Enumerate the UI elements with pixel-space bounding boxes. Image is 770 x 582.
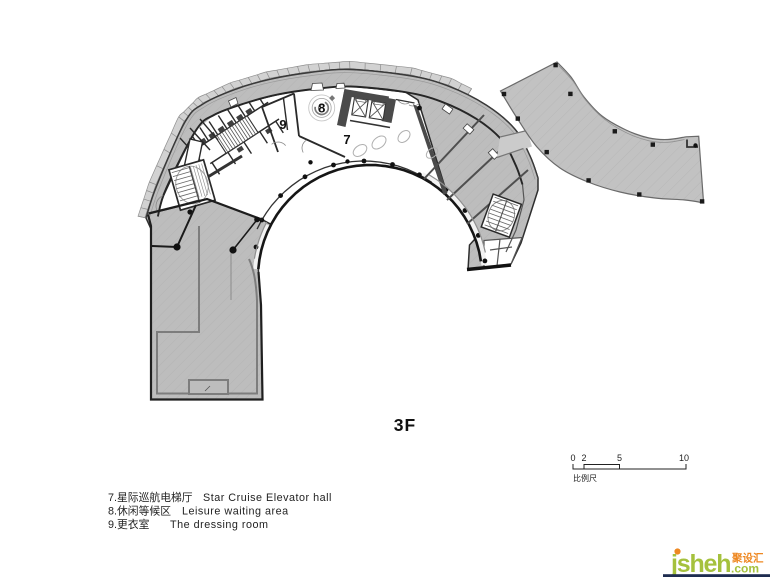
svg-text:7.星际巡航电梯厅: 7.星际巡航电梯厅 xyxy=(108,490,193,504)
svg-text:聚设汇: 聚设汇 xyxy=(731,552,764,565)
svg-text:8.休闲等候区: 8.休闲等候区 xyxy=(108,504,171,518)
svg-text:9.更衣室: 9.更衣室 xyxy=(108,517,150,531)
svg-text:9: 9 xyxy=(279,117,286,132)
svg-text:2: 2 xyxy=(581,453,586,463)
svg-text:10: 10 xyxy=(679,453,689,463)
svg-text:8: 8 xyxy=(318,101,325,116)
svg-text:Star Cruise Elevator hall: Star Cruise Elevator hall xyxy=(203,492,332,504)
svg-text:5: 5 xyxy=(617,453,622,463)
svg-text:比例尺: 比例尺 xyxy=(573,473,597,483)
svg-text:0: 0 xyxy=(570,453,575,463)
svg-text:3F: 3F xyxy=(394,415,416,435)
svg-text:Leisure waiting area: Leisure waiting area xyxy=(182,506,289,518)
svg-text:The dressing room: The dressing room xyxy=(170,519,269,531)
svg-text:7: 7 xyxy=(343,132,350,147)
